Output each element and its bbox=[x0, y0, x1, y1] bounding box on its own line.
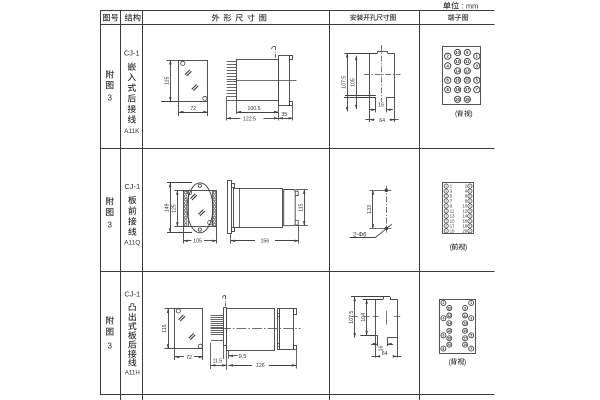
svg-text:A11K: A11K bbox=[124, 128, 140, 135]
svg-text:10: 10 bbox=[455, 50, 460, 55]
svg-text:115: 115 bbox=[298, 203, 304, 211]
svg-text:126: 126 bbox=[256, 363, 265, 369]
svg-text:): ) bbox=[465, 245, 467, 252]
svg-text:125: 125 bbox=[172, 204, 178, 213]
svg-text:11.5: 11.5 bbox=[212, 359, 222, 365]
svg-text:19: 19 bbox=[450, 228, 455, 233]
svg-text:17: 17 bbox=[465, 87, 470, 92]
svg-text:mm: mm bbox=[466, 2, 479, 11]
svg-text:15: 15 bbox=[465, 78, 470, 83]
svg-text:19: 19 bbox=[463, 343, 467, 347]
svg-text:13: 13 bbox=[465, 68, 470, 73]
svg-text:20: 20 bbox=[463, 228, 468, 233]
svg-text:CJ-1: CJ-1 bbox=[124, 49, 140, 58]
svg-text:): ) bbox=[464, 359, 466, 366]
svg-text::: : bbox=[461, 1, 463, 10]
svg-text:105: 105 bbox=[350, 78, 356, 87]
svg-text:20: 20 bbox=[455, 97, 460, 102]
svg-text:105: 105 bbox=[193, 239, 202, 245]
svg-text:2-Φ6: 2-Φ6 bbox=[353, 232, 367, 238]
svg-text:3: 3 bbox=[107, 221, 112, 230]
svg-text:149: 149 bbox=[164, 203, 170, 212]
svg-text:64: 64 bbox=[382, 351, 388, 357]
svg-text:7: 7 bbox=[470, 347, 472, 351]
svg-text:12: 12 bbox=[455, 59, 460, 64]
svg-text:72: 72 bbox=[186, 355, 192, 361]
svg-text:11: 11 bbox=[465, 59, 470, 64]
svg-text:10: 10 bbox=[447, 306, 451, 310]
svg-text:12: 12 bbox=[447, 314, 451, 318]
svg-text:5: 5 bbox=[470, 334, 472, 338]
svg-text:1: 1 bbox=[470, 301, 472, 305]
svg-text:13: 13 bbox=[463, 322, 467, 326]
svg-text:A11H: A11H bbox=[125, 369, 140, 376]
svg-text:156: 156 bbox=[260, 239, 269, 245]
svg-text:9.5: 9.5 bbox=[238, 354, 246, 360]
svg-text:9: 9 bbox=[464, 306, 466, 310]
svg-text:19: 19 bbox=[465, 97, 470, 102]
svg-text:64: 64 bbox=[379, 118, 385, 124]
svg-text:16: 16 bbox=[447, 329, 451, 333]
svg-text:104: 104 bbox=[361, 313, 367, 322]
svg-text:107.5: 107.5 bbox=[349, 311, 355, 324]
svg-text:72: 72 bbox=[190, 106, 196, 112]
svg-text:18: 18 bbox=[447, 337, 451, 341]
svg-text:14: 14 bbox=[447, 322, 451, 326]
svg-text:16: 16 bbox=[455, 78, 460, 83]
svg-text:15: 15 bbox=[463, 329, 467, 333]
svg-text:16: 16 bbox=[378, 103, 384, 109]
svg-text:14: 14 bbox=[455, 68, 460, 73]
svg-text:A11Q: A11Q bbox=[124, 239, 140, 246]
svg-text:4: 4 bbox=[442, 317, 444, 321]
svg-text:133: 133 bbox=[367, 205, 373, 214]
svg-text:): ) bbox=[470, 111, 472, 118]
svg-text:35: 35 bbox=[281, 112, 287, 118]
svg-text:3: 3 bbox=[107, 94, 112, 103]
svg-text:20: 20 bbox=[447, 343, 451, 347]
svg-text:6: 6 bbox=[442, 334, 444, 338]
svg-text:11: 11 bbox=[463, 314, 467, 318]
svg-text:2: 2 bbox=[442, 301, 444, 305]
svg-text:122.5: 122.5 bbox=[243, 116, 256, 122]
svg-text:115: 115 bbox=[165, 77, 171, 85]
svg-text:CJ-1: CJ-1 bbox=[124, 182, 140, 191]
svg-text:18: 18 bbox=[455, 87, 460, 92]
svg-text:100.5: 100.5 bbox=[248, 106, 261, 112]
svg-text:115: 115 bbox=[162, 324, 168, 332]
svg-text:17: 17 bbox=[463, 337, 467, 341]
svg-text:8: 8 bbox=[442, 347, 444, 351]
svg-text:CJ-1: CJ-1 bbox=[124, 290, 140, 299]
svg-text:3: 3 bbox=[470, 317, 472, 321]
svg-text:107.5: 107.5 bbox=[341, 76, 347, 89]
svg-text:3: 3 bbox=[107, 342, 112, 351]
